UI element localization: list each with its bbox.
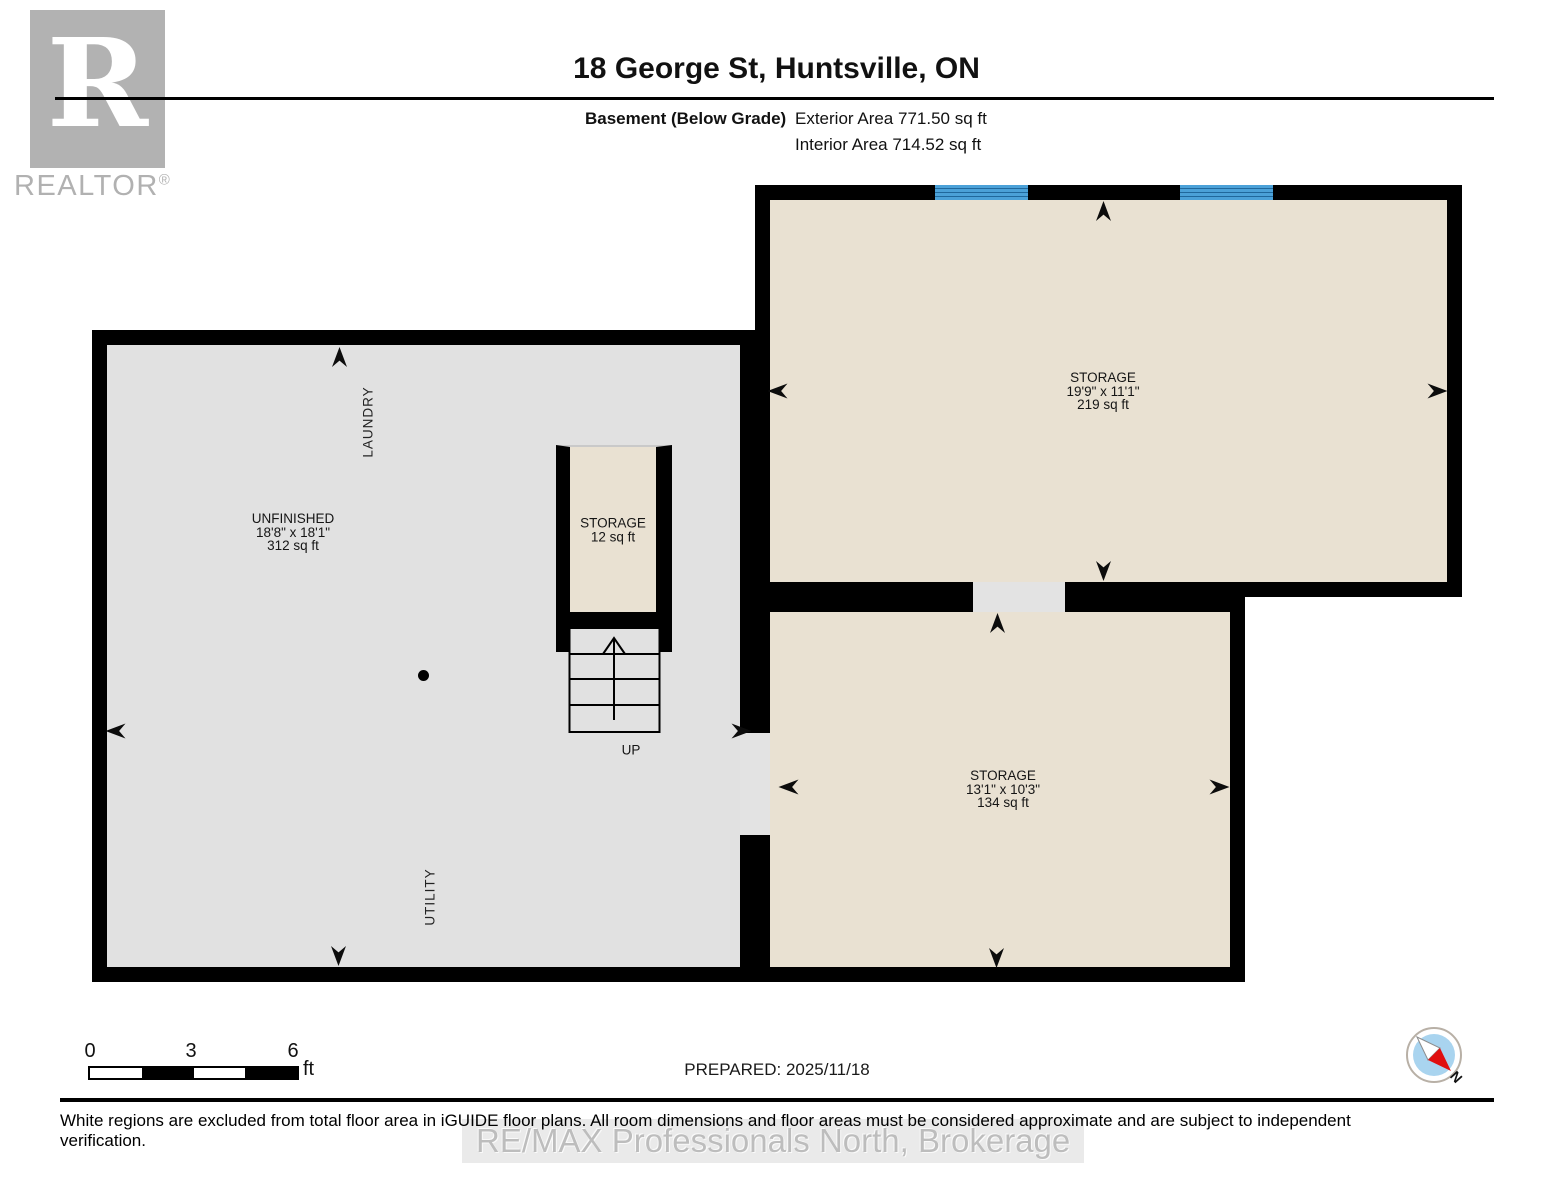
scale-bar-segment (142, 1068, 194, 1078)
realtor-wordmark: REALTOR® (14, 170, 171, 203)
room-area: 219 sq ft (1066, 398, 1139, 412)
scale-bar (88, 1066, 299, 1080)
scale-tick-3: 3 (185, 1040, 196, 1063)
floorplan-page: R REALTOR® 18 George St, Huntsville, ON … (0, 0, 1553, 1200)
scale-unit-label: ft (303, 1058, 314, 1081)
room-dimensions: 18'8" x 18'1" (252, 525, 335, 539)
realtor-logo: R (30, 10, 165, 168)
room-name: STORAGE (1066, 371, 1139, 385)
scale-bar-segment (90, 1068, 142, 1078)
room-area: 12 sq ft (580, 530, 646, 544)
stairs-up-label: UP (622, 743, 641, 757)
room-label-storage-closet: STORAGE 12 sq ft (580, 517, 646, 544)
compass-icon: N (1403, 1024, 1467, 1088)
room-area: 134 sq ft (966, 796, 1040, 810)
prepared-date: PREPARED: 2025/11/18 (684, 1060, 870, 1080)
page-title: 18 George St, Huntsville, ON (0, 52, 1553, 86)
room-label-storage-large: STORAGE 19'9" x 11'1" 219 sq ft (1066, 371, 1139, 412)
scale-tick-0: 0 (84, 1040, 95, 1063)
exterior-area: Exterior Area 771.50 sq ft (795, 109, 987, 129)
floor-label: Basement (Below Grade) (585, 109, 786, 129)
support-column-dot (418, 670, 429, 681)
room-label-storage-small: STORAGE 13'1" x 10'3" 134 sq ft (966, 769, 1040, 810)
room-area: 312 sq ft (252, 539, 335, 553)
room-label-laundry: LAUNDRY (361, 386, 376, 457)
door-opening-unfinished-to-storage (740, 733, 770, 835)
room-dimensions: 19'9" x 11'1" (1066, 384, 1139, 398)
realtor-logo-r-icon: R (30, 4, 165, 162)
scale-bar-segment (194, 1068, 246, 1078)
footer-divider (60, 1098, 1494, 1102)
room-name: UNFINISHED (252, 512, 335, 526)
room-name: STORAGE (966, 769, 1040, 783)
realtor-wordmark-text: REALTOR (14, 170, 159, 202)
room-dimensions: 13'1" x 10'3" (966, 782, 1040, 796)
disclaimer-text: White regions are excluded from total fl… (60, 1111, 1360, 1151)
header-divider (55, 97, 1494, 100)
room-label-unfinished: UNFINISHED 18'8" x 18'1" 312 sq ft (252, 512, 335, 553)
room-name: STORAGE (580, 517, 646, 531)
stairs-up (556, 627, 672, 739)
scale-tick-6: 6 (287, 1040, 298, 1063)
scale-bar-segment (245, 1068, 297, 1078)
window-icon (935, 185, 1028, 200)
door-opening-between-storage-rooms (973, 582, 1065, 612)
room-label-utility: UTILITY (423, 868, 438, 925)
window-icon (1180, 185, 1273, 200)
interior-area: Interior Area 714.52 sq ft (795, 135, 981, 155)
registered-trademark-icon: ® (159, 171, 172, 188)
